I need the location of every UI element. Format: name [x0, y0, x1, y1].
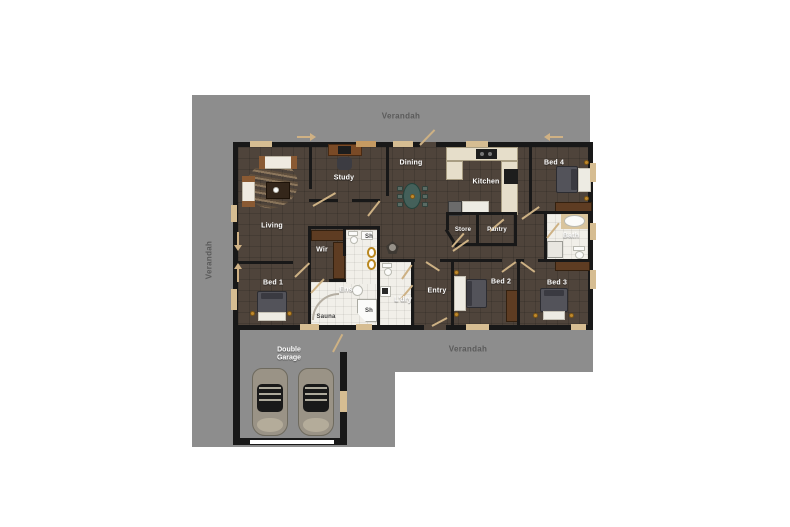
window [356, 141, 376, 147]
wall [451, 259, 454, 330]
bed3-foot [543, 311, 565, 320]
room-label-shower-top: Sh [365, 234, 373, 240]
bed1-pillow [261, 293, 283, 299]
floor-plan: Verandah Verandah Verandah Living Study … [0, 0, 790, 527]
wall [343, 226, 346, 256]
room-label-laundry: L'dry [394, 297, 412, 304]
wall [377, 226, 380, 326]
window [571, 324, 586, 330]
sofa-arm [242, 176, 255, 182]
burner-icon [480, 152, 484, 156]
room-label-ens: Ens [339, 287, 352, 294]
toilet-icon [575, 251, 584, 259]
car-icon [252, 368, 288, 436]
bedside-lamp [454, 312, 459, 317]
wall [411, 259, 414, 330]
room-label-bed2: Bed 2 [491, 279, 511, 286]
verandah-label-top: Verandah [382, 112, 420, 121]
wall [476, 212, 479, 246]
wall [352, 199, 380, 202]
bed3-shelf [555, 261, 590, 271]
room-label-dining: Dining [400, 160, 423, 167]
window [356, 324, 372, 330]
room-label-pantry: Pantry [487, 227, 507, 233]
wall [329, 279, 346, 282]
window [393, 141, 413, 147]
door-arrow-icon [237, 268, 239, 282]
window [300, 324, 319, 330]
window [250, 141, 272, 147]
bathtub-icon [564, 215, 585, 227]
sofa-arm [259, 156, 265, 169]
sofa-arm [242, 201, 255, 207]
kitchen-bench [446, 161, 463, 180]
dining-chair [422, 194, 428, 199]
window [231, 205, 237, 222]
room-label-garage: Double Garage [265, 347, 313, 364]
bedside-lamp [533, 313, 538, 318]
shower-icon [547, 241, 563, 258]
wall [517, 259, 520, 330]
car-hood [257, 418, 283, 432]
fixture-dot [389, 244, 396, 251]
wall [446, 212, 516, 215]
table-decor [273, 187, 279, 193]
garage-wall [233, 330, 240, 445]
room-label-entry: Entry [428, 288, 447, 295]
door-arrow-icon [297, 136, 311, 138]
bed3-pillow [544, 290, 564, 296]
wall [529, 143, 532, 213]
bedside-lamp [584, 196, 589, 201]
basin-icon [367, 247, 376, 258]
room-label-shower-corner: Sh [365, 308, 373, 314]
window [340, 391, 347, 412]
washer-door [382, 288, 388, 294]
room-label-sauna: Sauna [316, 314, 335, 320]
room-label-store: Store [455, 227, 471, 233]
pedestal-basin-icon [352, 285, 363, 296]
toilet-icon [350, 236, 358, 244]
door-opening [424, 325, 446, 330]
room-label-kitchen: Kitchen [472, 179, 499, 186]
garage-door [250, 440, 334, 444]
car-window [259, 399, 281, 401]
wall [308, 226, 311, 330]
dining-chair [422, 202, 428, 207]
wall [440, 259, 502, 262]
dining-chair [422, 186, 428, 191]
wall [446, 212, 449, 230]
room-label-living: Living [261, 223, 283, 230]
toilet-icon [384, 268, 392, 276]
burner-icon [488, 152, 492, 156]
room-label-bath: Bath [563, 233, 579, 240]
room-label-study: Study [334, 175, 354, 182]
bedside-lamp [454, 270, 459, 275]
verandah-label-bottom: Verandah [449, 345, 487, 354]
window [590, 163, 596, 182]
wall [529, 211, 593, 214]
dining-chair [397, 186, 403, 191]
wall [233, 261, 293, 264]
wall [309, 143, 312, 189]
wall [514, 212, 517, 246]
bed2-pillow [467, 281, 472, 306]
window [466, 324, 489, 330]
basin-icon [367, 259, 376, 270]
car-hood [303, 418, 329, 432]
verandah-label-left: Verandah [205, 241, 214, 279]
wall [386, 143, 389, 196]
room-label-wir: Wir [316, 247, 328, 254]
window [590, 223, 596, 240]
sofa-arm [291, 156, 297, 169]
wir-wardrobe [311, 230, 345, 241]
car-window [305, 387, 327, 389]
door-arrow-icon [549, 136, 563, 138]
oven-icon [504, 169, 518, 184]
car-window [305, 393, 327, 395]
wall [377, 259, 415, 262]
window [466, 141, 488, 147]
office-chair-icon [337, 157, 352, 170]
table-centrepiece [410, 194, 415, 199]
bed2-head [454, 276, 466, 311]
dining-chair [397, 202, 403, 207]
bedside-lamp [569, 313, 574, 318]
monitor-icon [338, 146, 351, 154]
car-window [259, 393, 281, 395]
bedside-lamp [287, 311, 292, 316]
room-label-bed3: Bed 3 [547, 280, 567, 287]
room-label-bed1: Bed 1 [263, 280, 283, 287]
bedside-lamp [584, 160, 589, 165]
bed4-pillow [571, 169, 577, 190]
window [590, 270, 596, 289]
car-window [259, 387, 281, 389]
car-icon [298, 368, 334, 436]
room-label-bed4: Bed 4 [544, 160, 564, 167]
door-arrow-icon [237, 232, 239, 246]
bed1-foot [258, 312, 286, 321]
bedside-lamp [250, 311, 255, 316]
car-window [305, 399, 327, 401]
window [231, 289, 237, 310]
